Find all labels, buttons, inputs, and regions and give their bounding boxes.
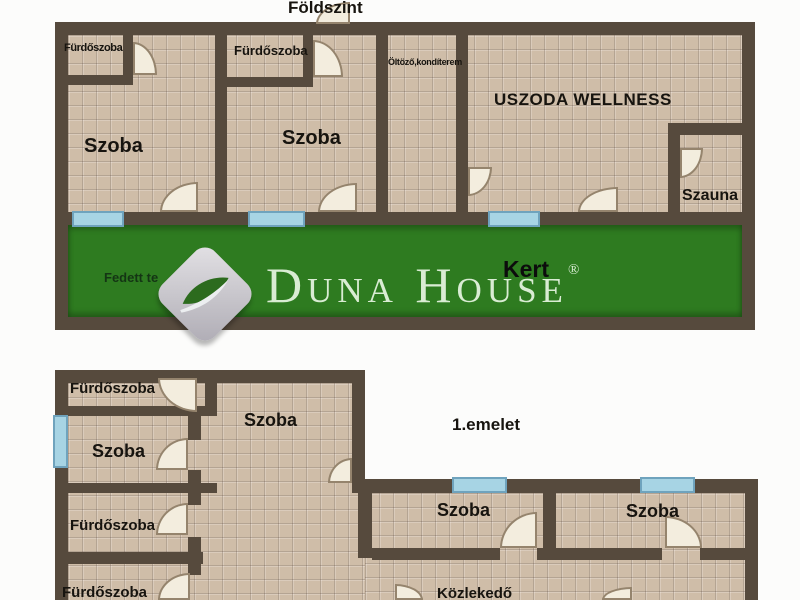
wall-segment (668, 123, 680, 212)
wall-segment (55, 552, 203, 564)
room-label-szoba-center: Szoba (244, 411, 297, 429)
window (72, 211, 124, 227)
window (53, 415, 68, 468)
window (488, 211, 540, 227)
room-label-sauna: Szauna (682, 188, 738, 204)
wall-segment (188, 537, 201, 575)
floor0-title: Földszint (288, 0, 363, 16)
room-label-bathroom2: Fürdőszoba (234, 44, 308, 57)
room-label-dressing: Öltöző,kondíterem (388, 58, 462, 67)
window (640, 477, 695, 493)
room-label-szoba-b: Szoba (626, 502, 679, 520)
room-label-szoba1: Szoba (84, 136, 143, 156)
room-label-szoba2: Szoba (282, 128, 341, 148)
terrace-label: Fedett te (104, 271, 158, 284)
wall-segment (537, 548, 662, 560)
leaf-icon (174, 263, 236, 325)
wall-segment (55, 22, 68, 330)
room-label-bathroom-mid: Fürdőszoba (70, 518, 155, 533)
wall-segment (55, 317, 755, 330)
room-label-szoba-left: Szoba (92, 442, 145, 460)
floor1-title: 1.emelet (452, 416, 520, 433)
wall-segment (352, 479, 758, 493)
room-label-bathroom-bottom: Fürdőszoba (62, 585, 147, 600)
wall-segment (745, 479, 758, 600)
wall-segment (55, 22, 755, 35)
room-label-szoba-a: Szoba (437, 501, 490, 519)
room-label-bathroom-top: Fürdőszoba (70, 381, 155, 396)
wall-segment (543, 493, 556, 548)
wall-segment (205, 370, 217, 416)
wall-segment (358, 493, 372, 558)
room-label-pool-wellness: USZODA WELLNESS (494, 91, 672, 108)
room-label-hallway: Közlekedő (437, 586, 512, 600)
window (248, 211, 305, 227)
wall-segment (372, 548, 500, 560)
wall-segment (668, 123, 742, 135)
floorplan-canvas: Földszint Fürdőszoba Szoba Fürdőszoba Sz… (0, 0, 800, 600)
garden-label: Kert (503, 258, 549, 281)
wall-segment (68, 212, 742, 225)
window (452, 477, 507, 493)
wall-segment (352, 370, 365, 493)
wall-segment (188, 415, 201, 440)
wall-segment (215, 35, 227, 212)
wall-segment (376, 35, 388, 212)
wall-segment (68, 75, 133, 85)
wall-segment (188, 470, 201, 505)
wall-segment (227, 77, 313, 87)
wall-segment (700, 548, 745, 560)
registered-mark: ® (568, 262, 579, 278)
wall-segment (742, 22, 755, 330)
room-label-bathroom1: Fürdőszoba (64, 43, 122, 54)
